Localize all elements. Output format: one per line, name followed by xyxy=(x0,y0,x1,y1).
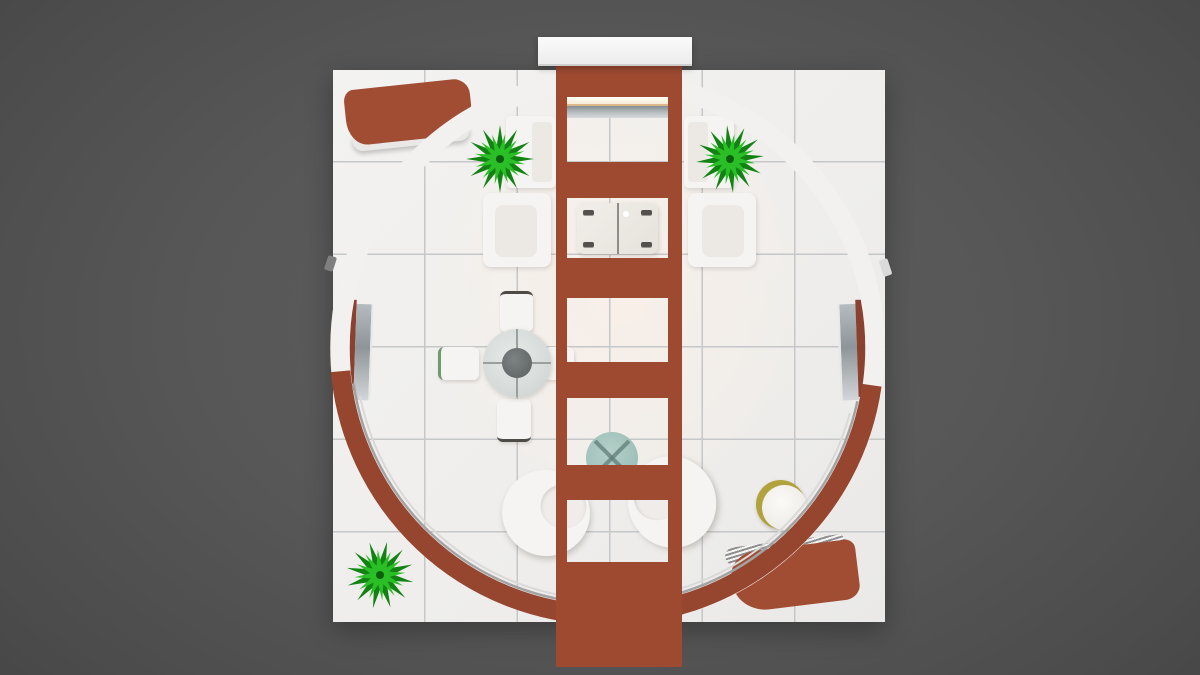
header-panel xyxy=(538,37,692,66)
armchair-left xyxy=(483,193,551,267)
render-scene xyxy=(0,0,1200,675)
dining-chair-west xyxy=(438,347,479,380)
tower-bar xyxy=(556,362,682,398)
tower-bar-bottom xyxy=(556,562,682,667)
dining-chair-north xyxy=(500,291,533,332)
plant-top-right xyxy=(695,124,765,194)
tower-wall xyxy=(556,58,682,667)
display-panel-left xyxy=(344,300,374,401)
tower-bar xyxy=(556,162,682,198)
table-center-column xyxy=(502,348,532,378)
armchair-cushion xyxy=(495,205,537,257)
sofa-seat xyxy=(532,122,552,182)
panel-screen xyxy=(353,304,373,401)
stool-top xyxy=(762,485,807,530)
bench-top-left xyxy=(343,77,477,156)
tower-bar xyxy=(556,465,682,500)
tower-bar xyxy=(556,258,682,298)
meeting-table xyxy=(483,329,551,397)
plant-leaves xyxy=(695,124,765,194)
plant-bottom-left xyxy=(345,540,415,610)
plant-leaves xyxy=(465,124,535,194)
dining-chair-south xyxy=(497,399,531,442)
armchair-right xyxy=(688,193,756,267)
plant-leaves xyxy=(345,540,415,610)
display-panel-right xyxy=(837,300,869,401)
plant-top-left xyxy=(465,124,535,194)
armchair-cushion xyxy=(702,205,744,257)
